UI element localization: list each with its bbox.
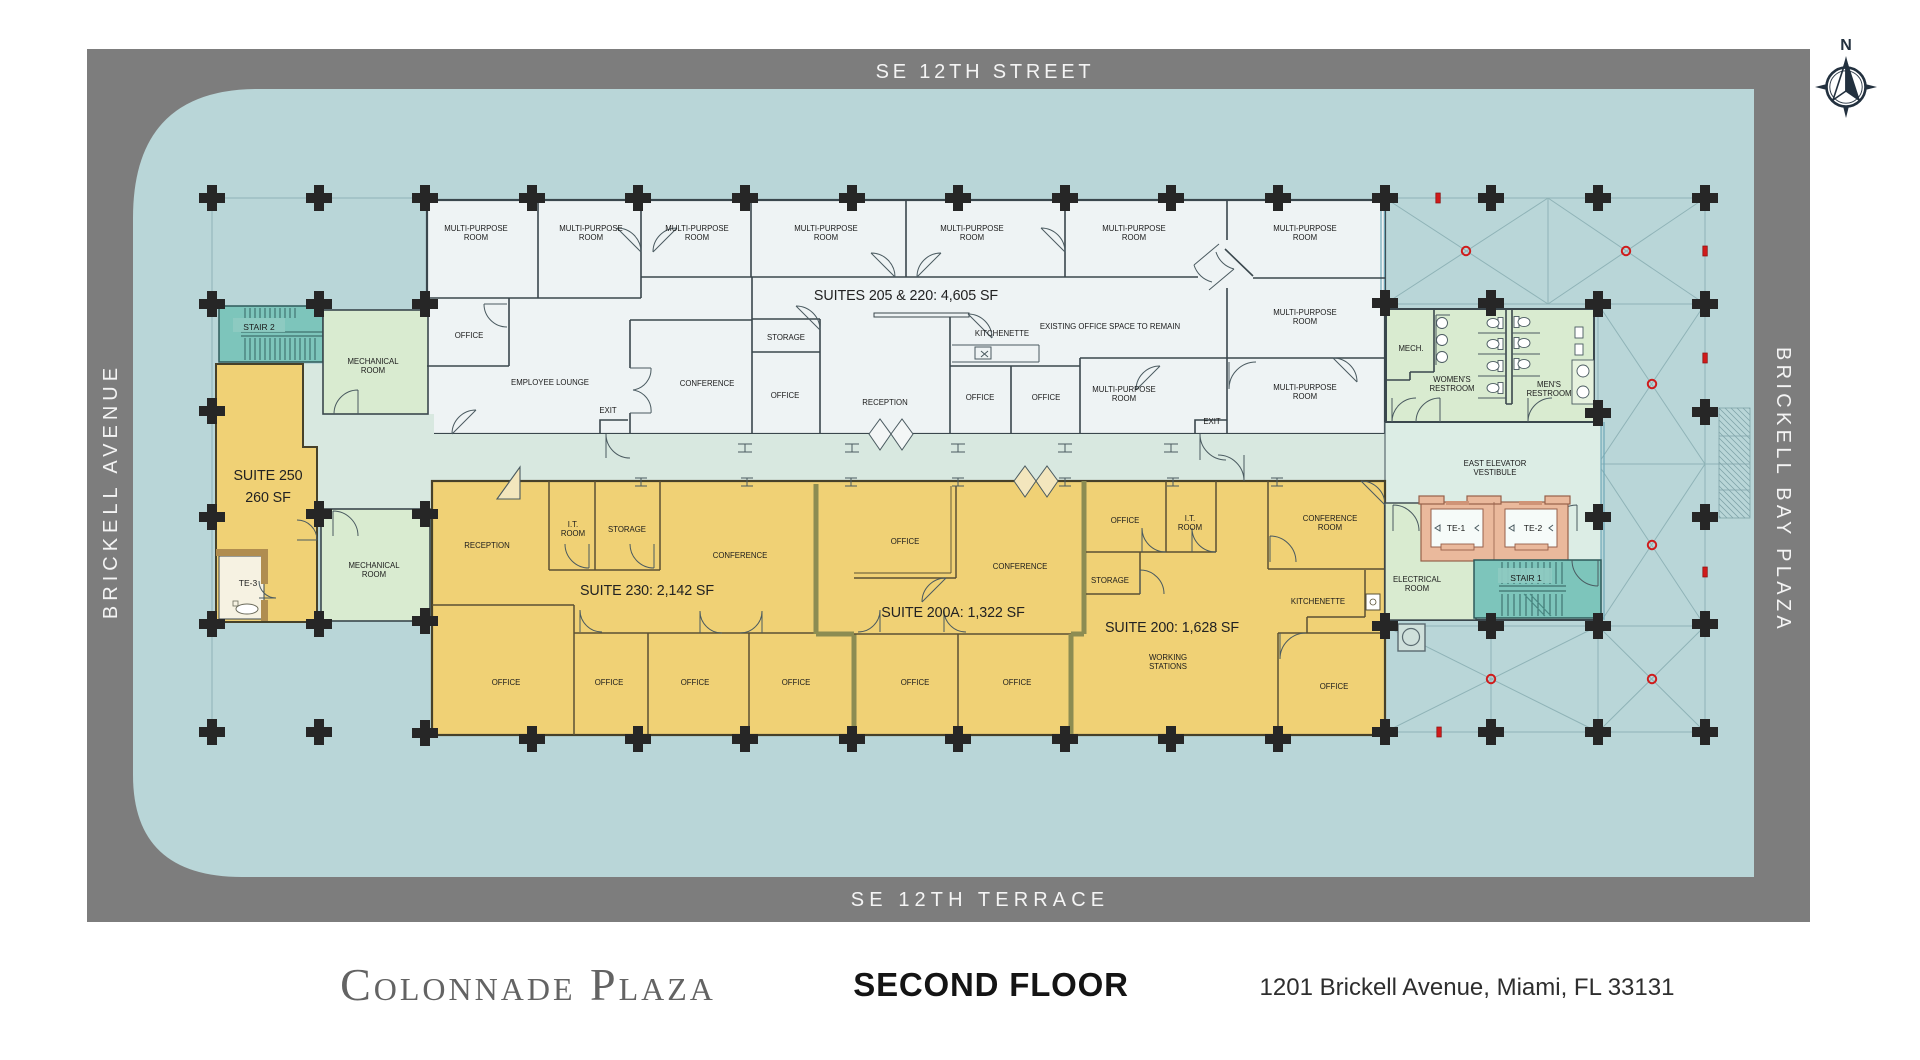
svg-text:CONFERENCE: CONFERENCE (680, 379, 735, 388)
svg-text:SECOND FLOOR: SECOND FLOOR (853, 966, 1128, 1003)
svg-text:OFFICE: OFFICE (1032, 393, 1061, 402)
svg-text:TE-2: TE-2 (1524, 523, 1543, 533)
svg-text:EXIT: EXIT (599, 406, 617, 415)
svg-text:TE-3: TE-3 (239, 578, 258, 588)
svg-text:STAIR 1: STAIR 1 (1510, 573, 1542, 583)
svg-text:OFFICE: OFFICE (1111, 516, 1140, 525)
svg-text:EXISTING OFFICE SPACE TO REMAI: EXISTING OFFICE SPACE TO REMAIN (1040, 322, 1180, 331)
svg-text:SUITE 200A: 1,322 SF: SUITE 200A: 1,322 SF (881, 605, 1025, 621)
svg-text:OFFICE: OFFICE (782, 678, 811, 687)
svg-text:TE-1: TE-1 (1447, 523, 1466, 533)
svg-text:STORAGE: STORAGE (608, 525, 646, 534)
svg-text:SUITE 250: SUITE 250 (233, 468, 302, 484)
svg-text:WORKINGSTATIONS: WORKINGSTATIONS (1149, 653, 1187, 671)
svg-text:EMPLOYEE LOUNGE: EMPLOYEE LOUNGE (511, 378, 589, 387)
svg-text:N: N (1840, 37, 1852, 54)
svg-text:RECEPTION: RECEPTION (862, 398, 908, 407)
svg-text:EXIT: EXIT (1203, 417, 1221, 426)
svg-text:Colonnade Plaza: Colonnade Plaza (340, 959, 716, 1010)
svg-text:BRICKELL BAY PLAZA: BRICKELL BAY PLAZA (1772, 347, 1794, 633)
svg-text:SE 12TH TERRACE: SE 12TH TERRACE (851, 889, 1109, 911)
svg-text:KITCHENETTE: KITCHENETTE (1291, 597, 1345, 606)
svg-text:OFFICE: OFFICE (901, 678, 930, 687)
svg-text:OFFICE: OFFICE (1320, 682, 1349, 691)
svg-text:260 SF: 260 SF (245, 490, 291, 506)
svg-text:WOMEN'SRESTROOM: WOMEN'SRESTROOM (1429, 375, 1474, 393)
svg-text:CONFERENCE: CONFERENCE (713, 551, 768, 560)
svg-text:OFFICE: OFFICE (771, 391, 800, 400)
svg-text:SUITE 230: 2,142 SF: SUITE 230: 2,142 SF (580, 583, 714, 599)
svg-text:STAIR 2: STAIR 2 (243, 322, 275, 332)
svg-text:STORAGE: STORAGE (767, 333, 805, 342)
svg-text:OFFICE: OFFICE (891, 537, 920, 546)
svg-text:CONFERENCE: CONFERENCE (993, 562, 1048, 571)
svg-text:OFFICE: OFFICE (1003, 678, 1032, 687)
svg-text:OFFICE: OFFICE (595, 678, 624, 687)
svg-text:OFFICE: OFFICE (455, 331, 484, 340)
svg-text:1201 Brickell Avenue, Miami, F: 1201 Brickell Avenue, Miami, FL 33131 (1260, 974, 1675, 1001)
svg-text:SUITES 205 & 220: 4,605 SF: SUITES 205 & 220: 4,605 SF (814, 288, 999, 304)
svg-text:KITCHENETTE: KITCHENETTE (975, 329, 1029, 338)
svg-text:OFFICE: OFFICE (681, 678, 710, 687)
svg-text:STORAGE: STORAGE (1091, 576, 1129, 585)
svg-text:BRICKELL AVENUE: BRICKELL AVENUE (100, 363, 122, 619)
svg-text:SE 12TH STREET: SE 12TH STREET (876, 61, 1095, 83)
svg-text:MECH.: MECH. (1398, 344, 1423, 353)
svg-text:RECEPTION: RECEPTION (464, 541, 510, 550)
svg-text:SUITE 200: 1,628 SF: SUITE 200: 1,628 SF (1105, 620, 1239, 636)
svg-text:OFFICE: OFFICE (966, 393, 995, 402)
svg-text:OFFICE: OFFICE (492, 678, 521, 687)
